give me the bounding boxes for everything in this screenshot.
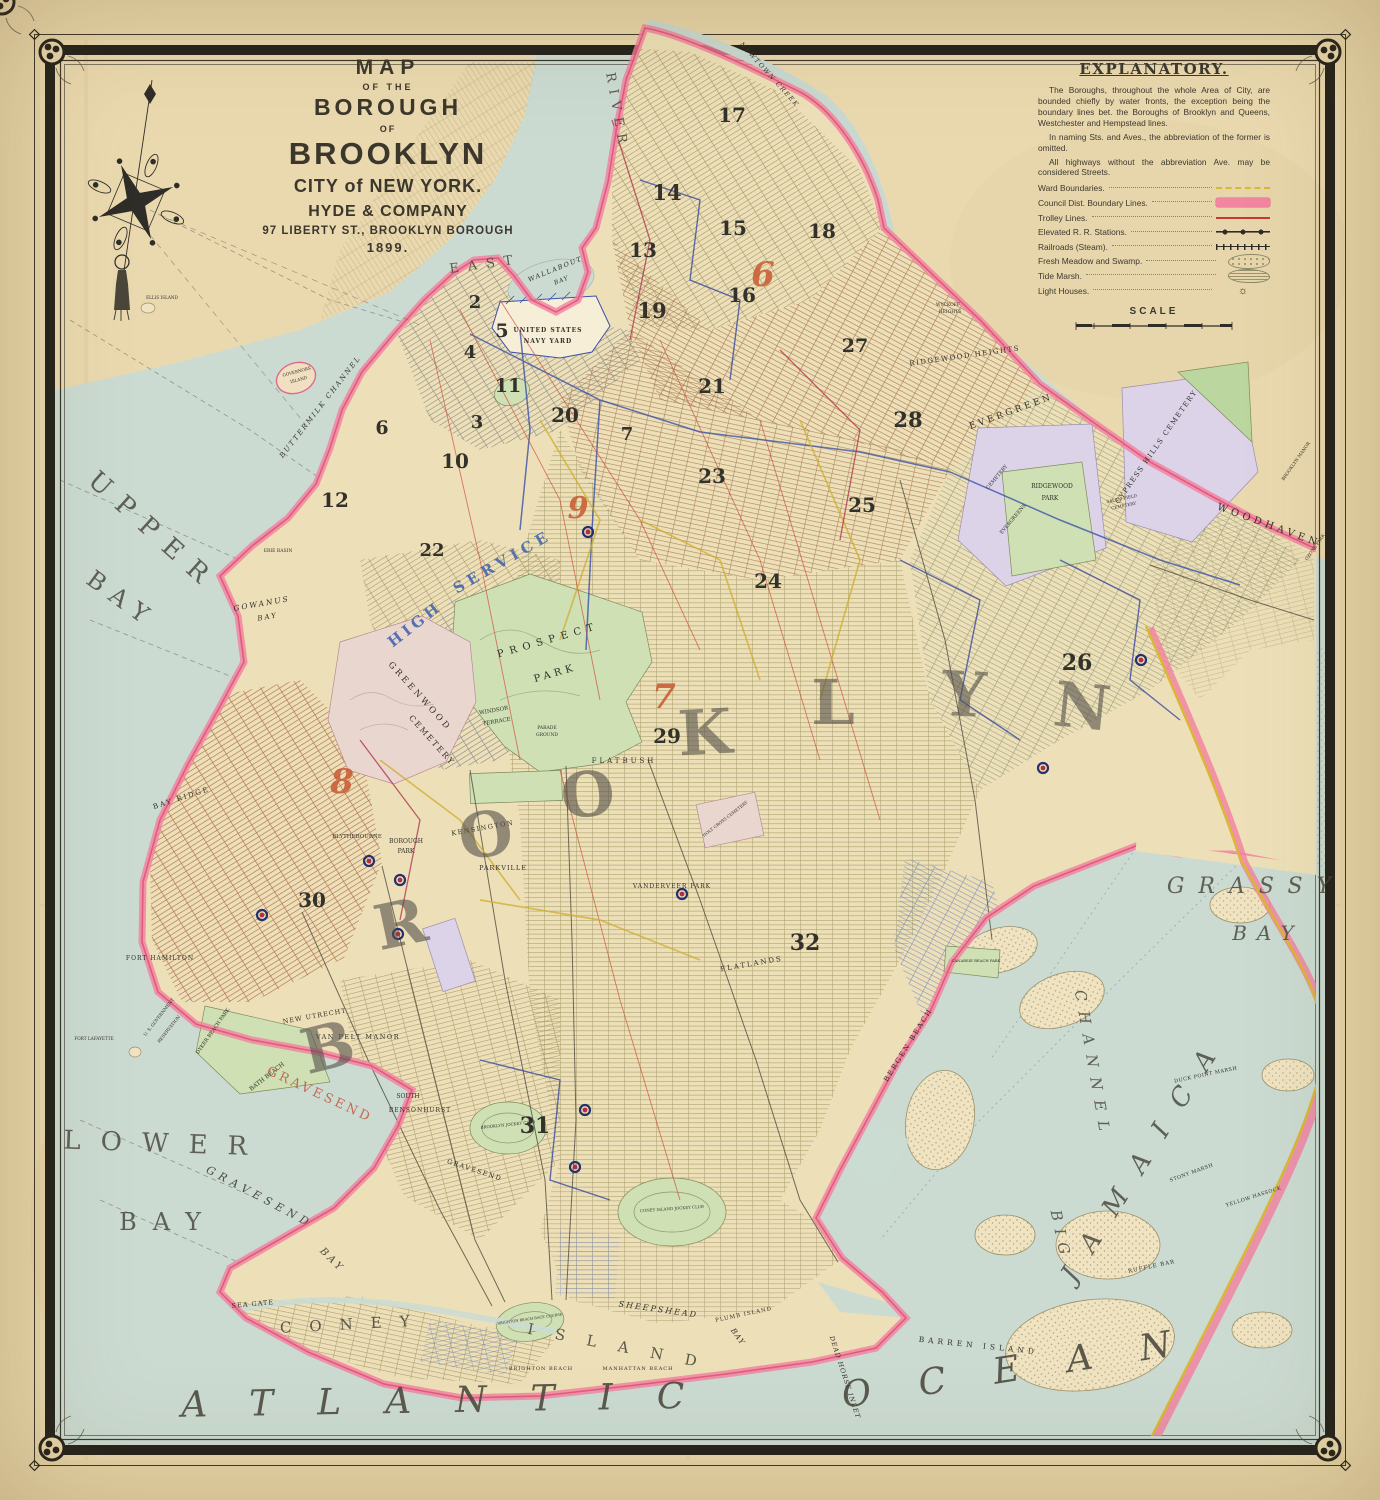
map-label: FORT LAFAYETTE bbox=[74, 1036, 113, 1041]
legend-label: Ward Boundaries. bbox=[1038, 183, 1105, 193]
title-line: MAP bbox=[238, 56, 538, 80]
big-letter: Y bbox=[939, 657, 989, 732]
legend-symbol-swamp-icon bbox=[1228, 254, 1270, 269]
map-label: GROUND bbox=[536, 732, 558, 738]
legend-leader bbox=[1146, 259, 1216, 261]
ward-number: 26 bbox=[1062, 650, 1093, 676]
map-label: BAY bbox=[119, 1208, 217, 1236]
ward-number: 27 bbox=[842, 335, 868, 357]
ward-number: 32 bbox=[790, 930, 821, 956]
legend-row: Trolley Lines. bbox=[1038, 212, 1270, 224]
title-block: MAPOF THEBOROUGHOFBROOKLYNCITY of NEW YO… bbox=[238, 56, 538, 255]
ward-number: 21 bbox=[698, 374, 726, 398]
legend-leader bbox=[1152, 200, 1212, 202]
legend-row: Council Dist. Boundary Lines. bbox=[1038, 197, 1270, 209]
elevated-station-dot bbox=[583, 1108, 588, 1113]
ward-number: 4 bbox=[464, 342, 477, 363]
ward-number: 5 bbox=[495, 320, 508, 342]
ward-number: 24 bbox=[754, 569, 782, 593]
map-label: NAVY YARD bbox=[524, 338, 572, 345]
ward-number: 31 bbox=[520, 1113, 551, 1139]
title-line: HYDE & COMPANY bbox=[238, 203, 538, 221]
scale-block: SCALE bbox=[1038, 306, 1270, 337]
legend-symbol-elevated-icon bbox=[1216, 227, 1270, 237]
map-label: BRIGHTON BEACH bbox=[509, 1366, 573, 1372]
legend-label: Tide Marsh. bbox=[1038, 271, 1082, 281]
elevated-station-dot bbox=[398, 878, 403, 883]
ward-number: 22 bbox=[419, 540, 444, 561]
ward-number: 15 bbox=[719, 216, 747, 240]
elevated-station-dot bbox=[586, 530, 591, 535]
ward-number: 14 bbox=[652, 180, 681, 205]
ward-number: 11 bbox=[495, 375, 521, 397]
map-label: MANHATTAN BEACH bbox=[603, 1366, 674, 1372]
big-letter: O bbox=[557, 755, 618, 833]
title-line: OF bbox=[238, 124, 538, 134]
big-letter: O bbox=[453, 794, 518, 875]
map-label: CANARSIE BEACH PARK bbox=[951, 958, 1000, 963]
ward-number: 7 bbox=[621, 424, 634, 445]
legend-leader bbox=[1092, 215, 1213, 217]
legend-row: Fresh Meadow and Swamp. bbox=[1038, 255, 1270, 267]
ward-number: 3 bbox=[471, 412, 484, 433]
legend-symbol-council-icon bbox=[1216, 198, 1270, 207]
title-line: BOROUGH bbox=[238, 94, 538, 121]
ward-number: 6 bbox=[375, 417, 388, 439]
elevated-station-dot bbox=[1139, 658, 1144, 663]
explanatory-paragraphs: The Boroughs, throughout the whole Area … bbox=[1038, 85, 1270, 178]
legend-symbol-lighthouse-icon: ☼ bbox=[1216, 285, 1270, 297]
ward-number: 23 bbox=[698, 464, 726, 488]
scale-bar bbox=[1074, 320, 1234, 332]
ward-number: 10 bbox=[441, 449, 469, 473]
legend-leader bbox=[1086, 273, 1216, 275]
title-line: BROOKLYN bbox=[238, 136, 538, 172]
map-label: UNITED STATES bbox=[513, 327, 582, 334]
map-label: SOUTH bbox=[396, 1093, 419, 1100]
explanatory-paragraph: All highways without the abbreviation Av… bbox=[1038, 157, 1270, 179]
map-label: HEIGHTS bbox=[939, 309, 962, 315]
legend-leader bbox=[1093, 288, 1212, 290]
map-label: GRASSY bbox=[1167, 874, 1345, 899]
ward-number: 19 bbox=[637, 298, 666, 323]
council-district-number: 6 bbox=[751, 255, 775, 295]
ward-number: 18 bbox=[808, 219, 836, 243]
elevated-station-dot bbox=[680, 892, 685, 897]
map-label: PARK bbox=[1042, 495, 1059, 502]
explanatory-title: EXPLANATORY. bbox=[1038, 60, 1270, 78]
map-sheet: UPPERBAYLOWERBAYATLANTICOCEANGRASSYBAYJA… bbox=[0, 0, 1380, 1500]
legend-leader bbox=[1109, 186, 1212, 188]
explanatory-paragraph: The Boroughs, throughout the whole Area … bbox=[1038, 85, 1270, 129]
legend-row: Railroads (Steam). bbox=[1038, 241, 1270, 253]
big-letter: N bbox=[1050, 667, 1114, 746]
elevated-station-dot bbox=[260, 913, 265, 918]
title-line: OF THE bbox=[238, 82, 538, 92]
ward-number: 28 bbox=[893, 407, 922, 432]
map-label: ERIE BASIN bbox=[264, 548, 293, 554]
legend-symbol-trolley-icon bbox=[1216, 217, 1270, 219]
map-label: BLYTHEBOURNE bbox=[332, 834, 382, 840]
ward-number: 2 bbox=[469, 292, 482, 313]
legend-label: Council Dist. Boundary Lines. bbox=[1038, 198, 1148, 208]
legend-row: Light Houses.☼ bbox=[1038, 285, 1270, 297]
ward-number: 13 bbox=[629, 238, 657, 262]
scale-title: SCALE bbox=[1038, 306, 1270, 317]
legend-label: Fresh Meadow and Swamp. bbox=[1038, 256, 1142, 266]
elevated-station-dot bbox=[1041, 766, 1046, 771]
legend-leader bbox=[1112, 244, 1212, 246]
map-label: ELLIS ISLAND bbox=[146, 295, 178, 300]
legend-symbol-railroad-icon bbox=[1216, 242, 1270, 252]
council-district-number: 9 bbox=[568, 491, 589, 526]
ward-number: 20 bbox=[551, 403, 579, 427]
elevated-station-dot bbox=[367, 859, 372, 864]
title-line: CITY of NEW YORK. bbox=[238, 176, 538, 197]
map-legend: Ward Boundaries.Council Dist. Boundary L… bbox=[1038, 182, 1270, 296]
big-letter: K bbox=[676, 695, 736, 771]
legend-row: Elevated R. R. Stations. bbox=[1038, 226, 1270, 238]
explanatory-paragraph: In naming Sts. and Aves., the abbreviati… bbox=[1038, 132, 1270, 154]
legend-row: Ward Boundaries. bbox=[1038, 182, 1270, 194]
map-label: PARK bbox=[398, 848, 415, 855]
map-label: WYCKOFF bbox=[936, 302, 960, 308]
legend-label: Trolley Lines. bbox=[1038, 213, 1088, 223]
map-label: VANDERVEER PARK bbox=[632, 883, 711, 890]
map-label: PARADE bbox=[537, 725, 556, 731]
ward-number: 30 bbox=[298, 888, 326, 912]
legend-label: Light Houses. bbox=[1038, 286, 1089, 296]
ward-number: 25 bbox=[848, 493, 876, 517]
legend-label: Railroads (Steam). bbox=[1038, 242, 1108, 252]
map-label: BOROUGH bbox=[389, 838, 423, 845]
big-letter: L bbox=[811, 666, 855, 739]
elevated-station-dot bbox=[573, 1165, 578, 1170]
council-district-number: 8 bbox=[329, 762, 354, 802]
ward-number: 17 bbox=[718, 103, 746, 127]
map-label: BAY bbox=[1231, 921, 1304, 945]
legend-label: Elevated R. R. Stations. bbox=[1038, 227, 1127, 237]
map-label: FORT HAMILTON bbox=[126, 955, 194, 962]
explanatory-panel: EXPLANATORY. The Boroughs, throughout th… bbox=[1038, 60, 1270, 337]
legend-row: Tide Marsh. bbox=[1038, 270, 1270, 282]
ward-number: 29 bbox=[653, 724, 681, 748]
council-district-number: 7 bbox=[652, 677, 676, 717]
legend-leader bbox=[1131, 230, 1212, 232]
legend-symbol-marsh-icon bbox=[1228, 269, 1270, 283]
legend-symbol-ward-icon bbox=[1216, 187, 1270, 189]
title-line: 1899. bbox=[238, 240, 538, 255]
map-label: RIDGEWOOD bbox=[1031, 483, 1073, 490]
title-line: 97 LIBERTY ST., BROOKLYN BOROUGH bbox=[238, 225, 538, 237]
map-label: BENSONHURST bbox=[389, 1107, 451, 1114]
ward-number: 12 bbox=[321, 488, 349, 512]
